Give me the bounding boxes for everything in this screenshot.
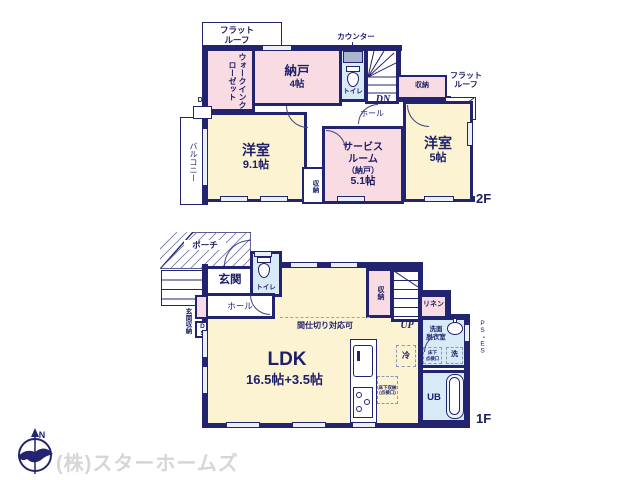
window [292,422,326,428]
window [202,366,208,394]
porch-label: ポーチ [184,240,226,250]
washer-space: 洗 [446,347,463,364]
window [226,422,260,428]
ldk-size-label: 16.5帖+3.5帖 [212,372,357,387]
west-room-5-label: 洋室 5帖 [406,128,470,172]
floorplan-canvas: フラット ルーフ バルコニー ウォークインクローゼット 納戸 4帖 トイレ カウ… [0,0,640,480]
linen-label: リネン [420,301,447,309]
window [330,262,358,268]
floor1-label: 1F [476,411,502,426]
closet-2f-mid-label: 収納 [308,172,318,200]
window [202,128,208,186]
counter-leader-line [352,42,353,51]
window [467,122,473,146]
counter-label: カウンター [334,33,378,42]
ds-2f-label: DS [193,97,212,105]
window [337,196,365,202]
washbasin-icon [447,322,463,335]
floor2-label: 2F [476,191,502,206]
window [262,45,292,51]
fridge-space: 冷 [396,345,416,367]
entrance-storage-box [195,295,208,319]
ds-2f-duct [193,106,212,119]
window [424,196,454,202]
closet-2f-top-label: 収納 [397,82,447,90]
company-watermark: (株)スターホームズ [56,447,239,476]
washbasin-faucet-icon [453,318,457,323]
partition-dashed-line [280,317,370,319]
counter-surface [343,51,363,63]
west-room-9-1-label: 洋室 9.1帖 [210,136,302,178]
ps-es-label: PS・ES [475,316,486,358]
stairs-1f-winder [394,271,418,319]
window [464,324,470,342]
kitchen-faucet-icon [357,351,360,361]
flat-roof-right-label: フラット ルーフ [444,70,488,90]
unit-bath-label: UB [422,392,446,403]
closet-1f-label: 収納 [374,278,384,308]
bathtub-inner [449,377,460,415]
door-arc [358,104,378,124]
underfloor-storage-box: 床下収納 (点検口) [377,376,398,404]
stove-icon [353,387,373,418]
entrance-label: 玄関 [208,274,252,288]
flat-roof-left-label: フラット ルーフ [204,24,270,46]
north-compass-icon: N [12,426,58,478]
toilet-2f-label: トイレ [340,88,366,96]
stairs-1f [391,268,421,322]
window [260,196,288,202]
window [202,330,208,358]
partition-note: 間仕切り対応可 [282,321,368,330]
window [290,262,318,268]
balcony-label: バルコニー [186,128,198,196]
walk-in-closet-label: ウォークインクローゼット [213,52,247,109]
window [352,422,376,428]
toilet-1f-label: トイレ [250,284,282,292]
window [220,196,248,202]
ldk-label: LDK [232,349,342,371]
north-letter: N [39,430,46,440]
bathtub-icon [446,374,464,419]
window [254,251,272,257]
storage-room-4j-label: 納戸 4帖 [262,58,332,96]
burner-icon [364,399,370,405]
stairs-up-label: UP [395,320,419,332]
burner-icon [356,406,362,412]
burner-icon [356,392,362,398]
entrance-storage-label: 玄関収納 [181,298,191,344]
